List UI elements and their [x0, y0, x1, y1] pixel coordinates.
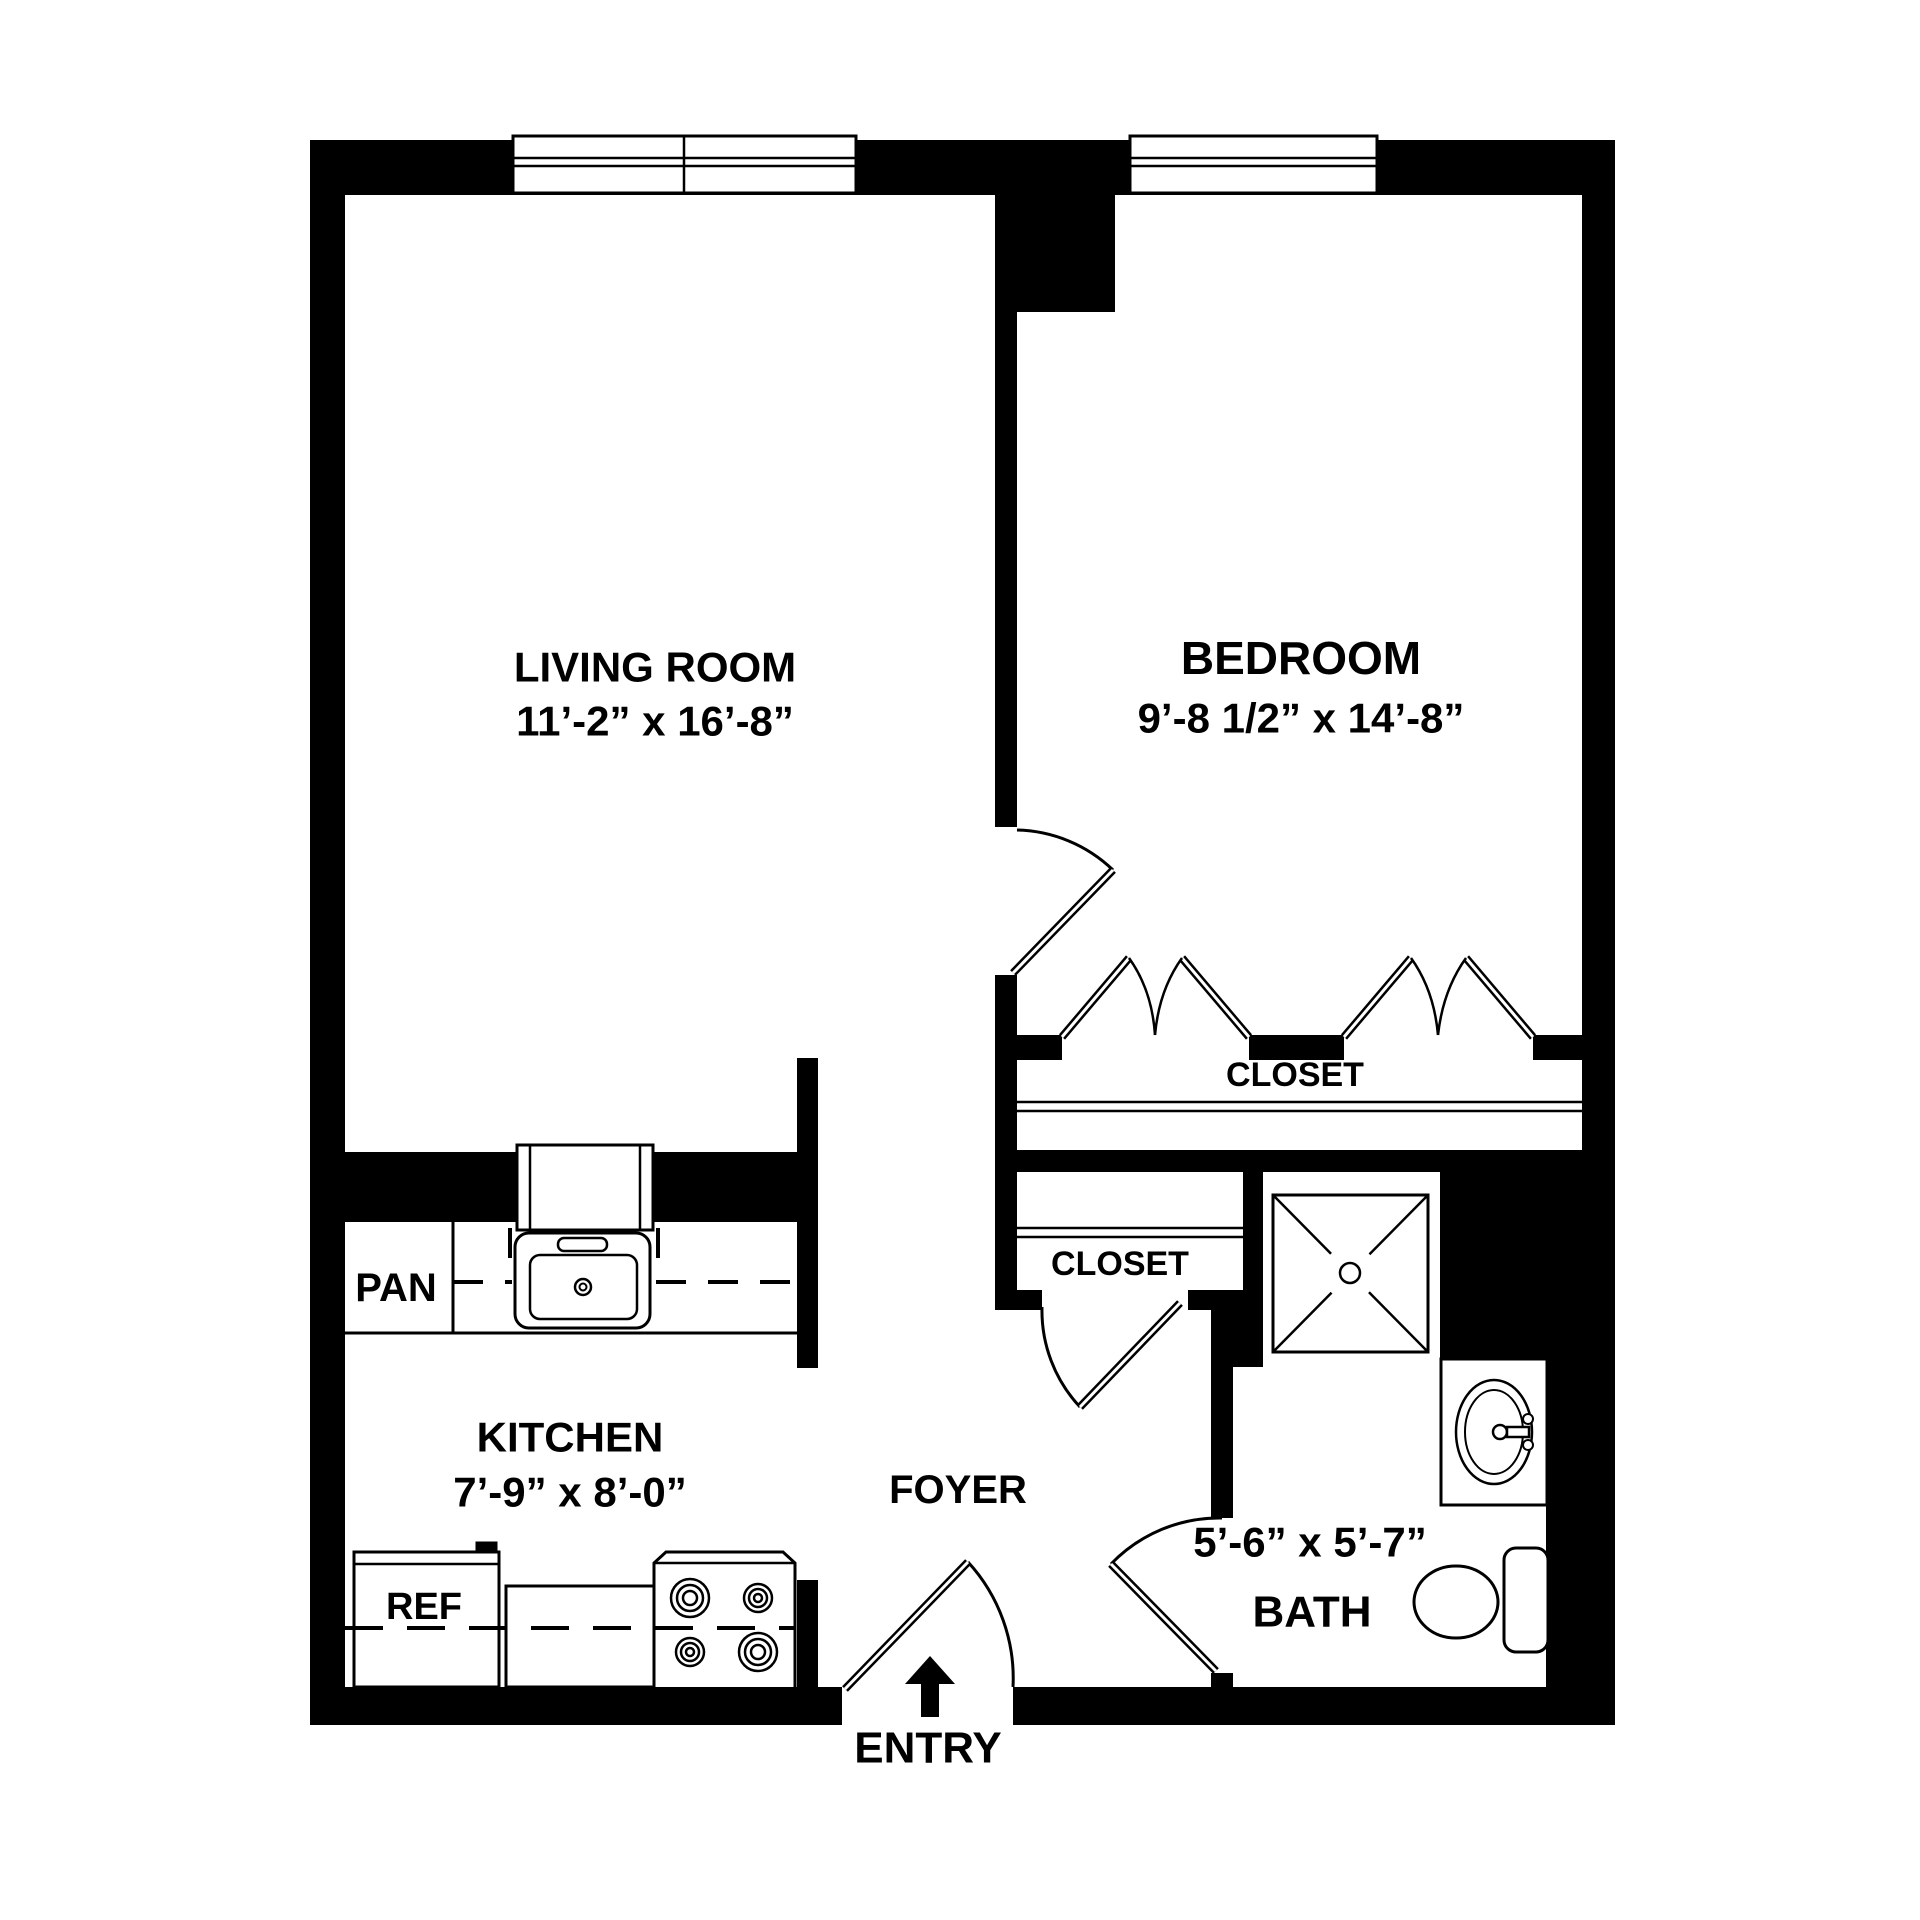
living-room-label: LIVING ROOM: [514, 644, 796, 691]
living-room-window: [513, 136, 856, 193]
wall-living-bedroom: [995, 312, 1017, 827]
kitchen-pass-through-window: [517, 1145, 653, 1230]
living-room-dimensions: 11’-2” x 16’-8”: [516, 698, 794, 745]
wall-kitchen-east-lower: [797, 1580, 818, 1687]
foyer-closet-door: [1042, 1303, 1180, 1407]
wall-right-lower: [1546, 1359, 1615, 1723]
bedroom-door: [1013, 830, 1113, 973]
wall-left: [310, 140, 345, 1725]
toilet-bowl: [1414, 1566, 1498, 1638]
wall-right-upper: [1582, 140, 1615, 1359]
bath-label: BATH: [1253, 1588, 1372, 1637]
entry-arrow-icon: [905, 1656, 955, 1717]
kitchen-sink: [515, 1233, 650, 1328]
bathroom-sink: [1441, 1359, 1547, 1505]
foyer-label: FOYER: [889, 1468, 1027, 1512]
wall-bottom-right: [1013, 1687, 1615, 1725]
wall-kitchen-east-mid: [797, 1222, 818, 1368]
refrigerator-handle-icon: [476, 1542, 497, 1552]
bedroom-label: BEDROOM: [1181, 632, 1421, 684]
refrigerator-label: REF: [386, 1586, 462, 1628]
floor-plan-page: LIVING ROOM 11’-2” x 16’-8” BEDROOM 9’-8…: [0, 0, 1920, 1920]
wall-top: [310, 140, 1615, 195]
wall-hall-closet-west: [995, 975, 1017, 1310]
wall-shower-right-mass: [1440, 1150, 1582, 1359]
bedroom-window: [1130, 136, 1377, 193]
doors: [845, 830, 1533, 1689]
foyer-closet-label: CLOSET: [1051, 1245, 1189, 1283]
floor-plan-svg: LIVING ROOM 11’-2” x 16’-8” BEDROOM 9’-8…: [0, 0, 1920, 1920]
entry-label: ENTRY: [854, 1724, 1002, 1773]
wall-bifold-left-jamb: [995, 1035, 1062, 1060]
wall-kitchen-band-right: [653, 1152, 818, 1222]
bedroom-dimensions: 9’-8 1/2” x 14’-8”: [1138, 695, 1465, 742]
shower: [1273, 1195, 1428, 1352]
toilet: [1414, 1548, 1548, 1652]
bedroom-closet-bifold-doors: [1062, 958, 1533, 1037]
kitchen-dimensions: 7’-9” x 8’-0”: [453, 1469, 686, 1516]
wall-kitchen-band-left: [345, 1152, 518, 1222]
kitchen-base-cabinet: [506, 1586, 654, 1687]
wall-bottom-left: [310, 1687, 842, 1725]
wall-kitchen-east-upper: [797, 1058, 818, 1152]
wall-bath-west: [1211, 1310, 1233, 1518]
wall-foyer-closet-left-jamb: [1017, 1290, 1042, 1310]
kitchen-label: KITCHEN: [477, 1414, 664, 1461]
wall-pillar-living-bedroom: [995, 195, 1115, 312]
toilet-tank: [1504, 1548, 1548, 1652]
wall-bath-west-connector: [1233, 1310, 1263, 1367]
wall-bifold-right-jamb: [1533, 1035, 1582, 1060]
bath-dimensions: 5’-6” x 5’-7”: [1193, 1519, 1426, 1566]
wall-bath-door-stub: [1211, 1673, 1233, 1691]
faucet-icon: [1493, 1425, 1507, 1439]
pantry-label: PAN: [355, 1266, 436, 1310]
wall-foyer-closet-right-jamb: [1188, 1290, 1243, 1310]
bedroom-closet-label: CLOSET: [1226, 1056, 1364, 1094]
stove: [654, 1552, 795, 1687]
